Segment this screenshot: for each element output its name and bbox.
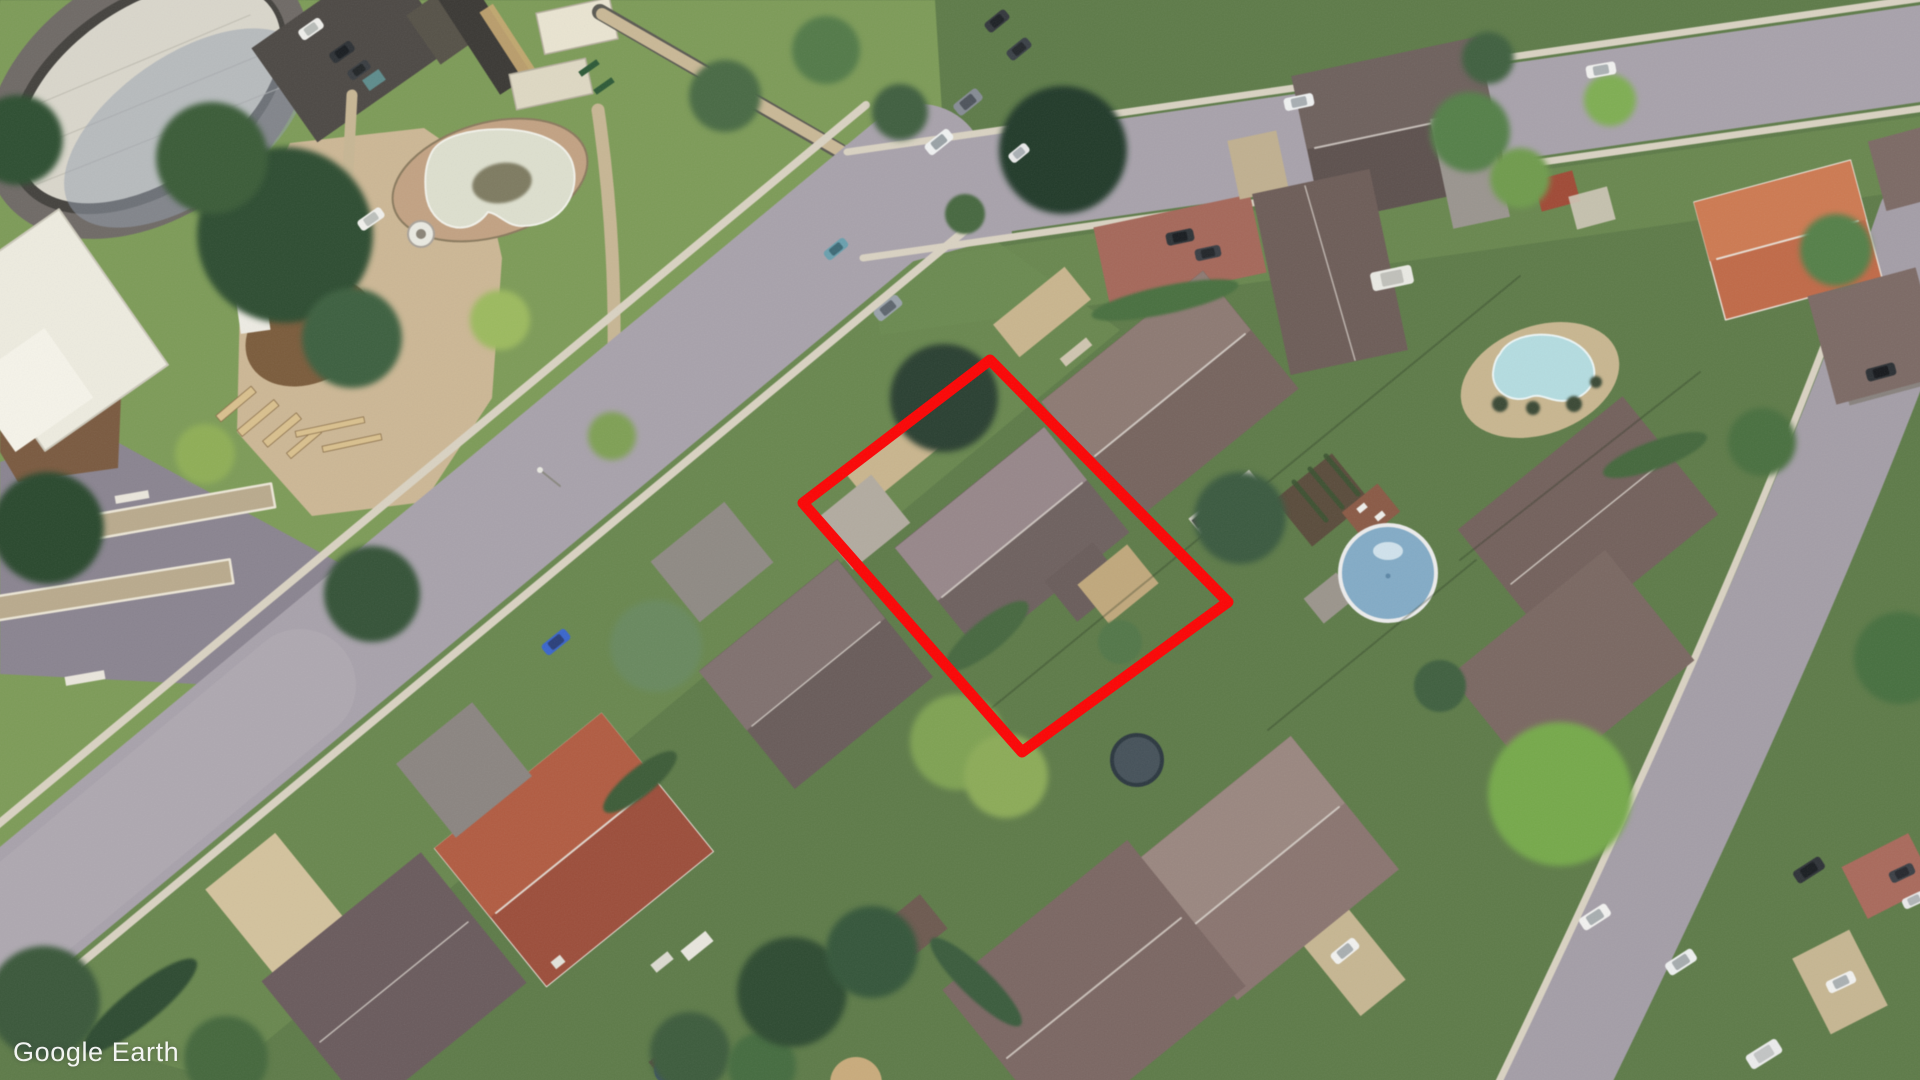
map-viewport[interactable]: Google Earth <box>0 0 1920 1080</box>
photo-grain-overlay <box>0 0 1920 1080</box>
google-earth-watermark: Google Earth <box>13 1037 179 1068</box>
aerial-scene <box>0 0 1920 1080</box>
